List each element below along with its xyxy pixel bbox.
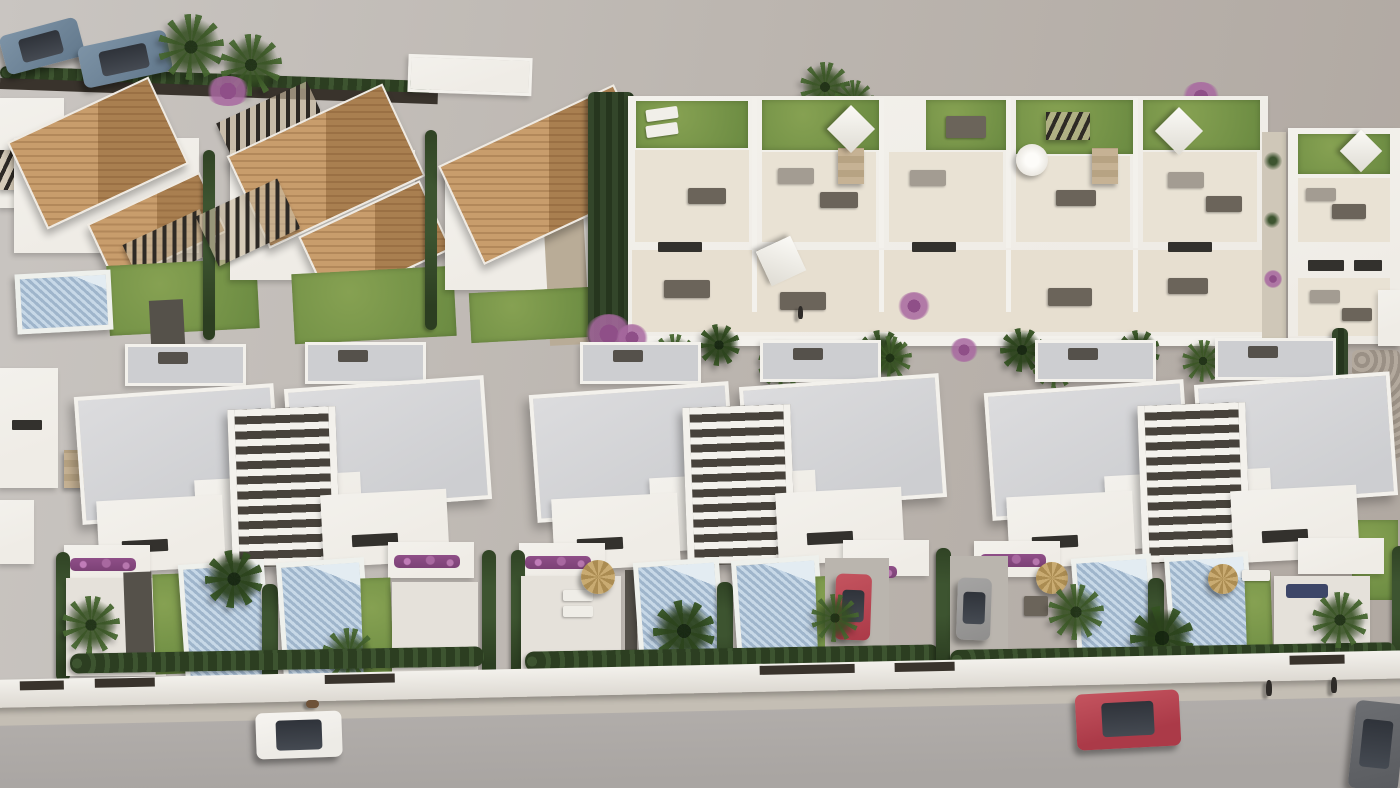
dark-suv-glass [1359,718,1394,769]
neighbor-wall [0,500,34,564]
parked-suv-dark [1348,700,1400,788]
suv-1-glass [18,29,65,63]
window [1308,260,1344,271]
lower-terrace [1298,278,1390,336]
shrub [1264,152,1282,170]
partition-wall [752,98,757,248]
fence-insert [20,680,64,690]
sofa [910,170,946,186]
sofa [1310,290,1340,303]
bougainvillea [1264,270,1282,288]
bougainvillea [898,292,930,320]
stone-accent-wall [1092,148,1118,184]
rear-roof [1035,340,1156,382]
dining-set [1206,196,1242,212]
sofa [778,168,814,184]
rear-roof [760,340,881,382]
dog [306,700,319,708]
mediterranean-villa-row [0,88,632,350]
dining-set [1056,190,1096,206]
driving-car-white [255,711,343,760]
rear-roof [1215,338,1336,380]
sofa [1306,188,1336,201]
dining-set [664,280,710,298]
dining-set [688,188,726,204]
lower-street [0,628,1400,788]
straw-umbrella [581,560,615,594]
roof-vent [793,348,823,360]
driving-car-red [1075,689,1182,750]
upper-street [0,0,1400,96]
roof-vent [1068,348,1098,360]
dining-set [1048,288,1092,306]
white-car-glass [275,719,322,751]
outdoor-kitchen [946,116,986,138]
suv-2-glass [98,42,150,76]
fence-insert [95,678,155,688]
partition-wall [1133,98,1138,248]
apartment-row [628,92,1268,350]
partition-wall [879,250,884,312]
lounger [1242,570,1270,581]
stone-accent-wall [838,148,864,184]
window [12,420,42,430]
purple-planter [394,555,460,568]
banana-palm [205,550,263,608]
window [912,242,956,252]
window [1168,242,1212,252]
purple-planter [525,556,591,569]
partition-wall [752,250,757,312]
navy-planter [1286,584,1328,598]
partition-wall [1006,98,1011,248]
partition-wall [1006,250,1011,312]
partition-wall [1133,250,1138,312]
table [1024,596,1048,616]
dining-set [1168,278,1208,294]
gray-car-glass [962,592,985,625]
window [1354,260,1382,271]
dining-set [1332,204,1366,219]
roof-vent [338,350,368,362]
person [1331,677,1337,693]
straw-umbrella [1208,564,1238,594]
roof-vent [1248,346,1278,358]
shrub [1264,212,1280,228]
dining-set [820,192,858,208]
fence-insert [1289,655,1344,665]
fence-insert [895,662,955,672]
rear-roof [305,342,426,384]
table [1342,308,1372,321]
front-volume-right [1298,538,1384,574]
partition-wall [879,98,884,248]
bougainvillea [950,338,978,362]
roof-vent [158,352,188,364]
villa-1-pool [14,270,113,335]
aerial-render-scene [0,0,1400,788]
roof-vent [613,350,643,362]
fence-insert [325,674,395,684]
purple-planter [70,558,136,571]
lounger [563,606,593,617]
red-sedan-glass [1101,701,1155,738]
roof-terrace-3 [889,152,1003,242]
person [1266,680,1272,696]
fence-insert [760,664,855,675]
person [798,306,803,319]
window [658,242,702,252]
round-umbrella [1016,144,1048,176]
dining-set [780,292,826,310]
rear-roof [580,342,701,384]
rear-roof [125,344,246,386]
palm-tree [158,14,224,80]
sofa [1168,172,1204,188]
roof-pergola [1046,112,1090,140]
villa-3-lawn [469,287,593,343]
hedge [425,130,437,330]
